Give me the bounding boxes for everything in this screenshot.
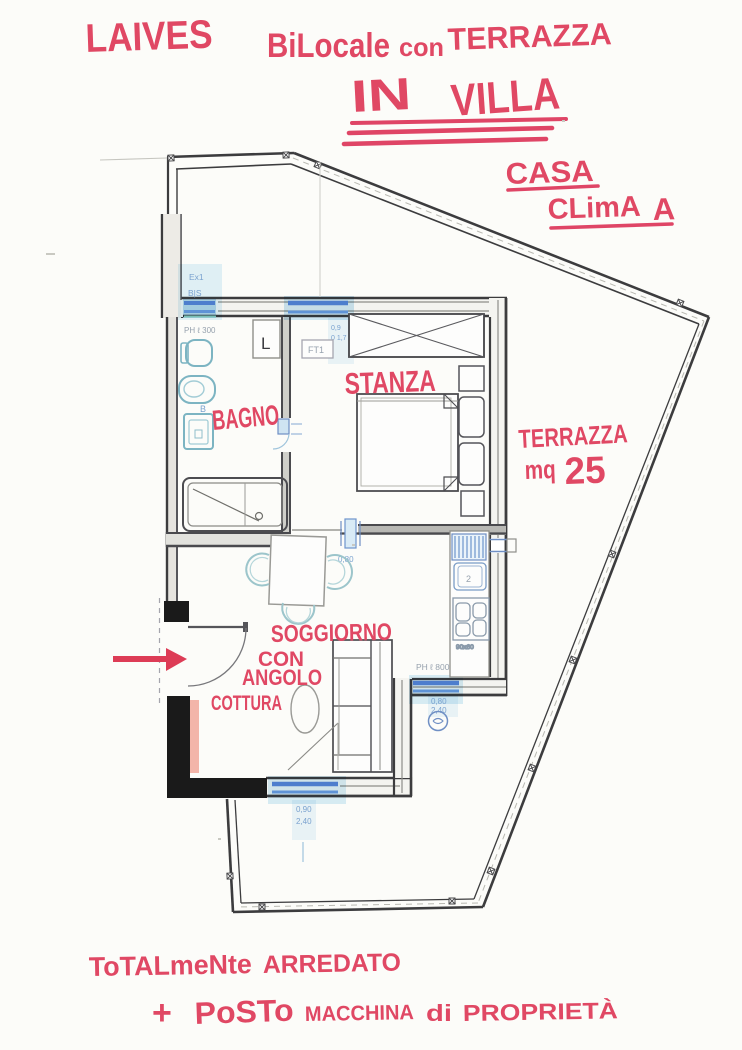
svg-text:SOGGIORNO: SOGGIORNO [271,619,392,648]
svg-text:IN: IN [350,68,413,122]
svg-text:TERRAZZA: TERRAZZA [518,418,629,454]
svg-text:PROPRIETÀ: PROPRIETÀ [463,996,618,1026]
svg-text:0,90: 0,90 [296,805,312,814]
svg-text:25: 25 [564,450,606,493]
svg-text:ARREDATO: ARREDATO [263,949,401,979]
svg-text:B|S: B|S [188,288,202,298]
svg-text:STANZA: STANZA [344,365,436,401]
svg-text:0,80: 0,80 [431,697,447,706]
svg-text:COTTURA: COTTURA [211,692,282,715]
svg-text:BiLocale: BiLocale [267,27,390,65]
svg-text:2: 2 [466,574,471,584]
svg-text:90x60: 90x60 [456,644,474,651]
svg-text:A: A [652,191,676,227]
svg-text:mq: mq [524,454,556,485]
svg-text:FT1: FT1 [308,345,324,355]
svg-text:L: L [261,334,270,353]
svg-text:LAIVES: LAIVES [85,13,213,61]
svg-text:PH ℓ 800: PH ℓ 800 [416,662,450,672]
svg-text:2,40: 2,40 [296,817,312,826]
svg-text:ToTALmeNte: ToTALmeNte [89,949,252,982]
svg-text:TERRAZZA: TERRAZZA [447,16,612,57]
svg-text:0,9: 0,9 [331,325,341,332]
svg-text:MACCHINA: MACCHINA [305,1001,414,1026]
svg-text:Ex1: Ex1 [189,272,204,282]
svg-text:PoSTo: PoSTo [194,993,294,1031]
svg-text:di: di [426,1000,452,1026]
svg-text:VILLA: VILLA [449,67,561,125]
svg-text:ANGOLO: ANGOLO [242,665,322,690]
svg-text:PH ℓ 300: PH ℓ 300 [184,326,216,335]
svg-text:con: con [399,32,444,62]
svg-text:B: B [200,404,206,414]
svg-text:BAGNO: BAGNO [211,399,280,436]
svg-text:CLimA: CLimA [547,191,641,226]
svg-text:+: + [152,994,172,1032]
